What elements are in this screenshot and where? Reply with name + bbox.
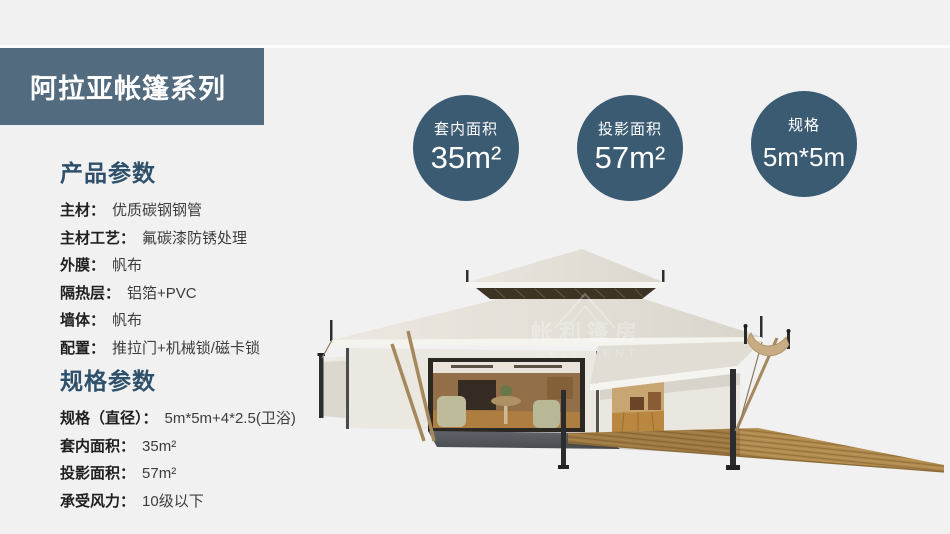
spec-params-heading: 规格参数 <box>60 362 296 396</box>
watermark-en: WELL TENT <box>534 348 640 360</box>
param-row: 墙体：帆布 <box>60 307 260 335</box>
param-row: 配置：推拉门+机械锁/磁卡锁 <box>60 335 260 363</box>
series-banner: 阿拉亚帐篷系列 <box>0 48 264 125</box>
param-value: 帆布 <box>112 257 142 274</box>
param-value: 35m² <box>142 438 176 455</box>
param-label: 主材： <box>60 202 105 219</box>
param-value: 推拉门+机械锁/磁卡锁 <box>112 340 260 357</box>
param-row: 承受风力：10级以下 <box>60 488 296 516</box>
param-value: 氟碳漆防锈处理 <box>142 230 247 247</box>
param-label: 墙体： <box>60 312 105 329</box>
param-label: 规格（直径）： <box>60 410 158 427</box>
badge-value: 57m² <box>577 140 683 176</box>
param-value: 帆布 <box>112 312 142 329</box>
watermark-cn: 帐利篷房 <box>531 320 643 345</box>
badge-value: 5m*5m <box>751 142 857 173</box>
spec-params-section: 规格参数 规格（直径）：5m*5m+4*2.5(卫浴) 套内面积：35m² 投影… <box>60 362 296 515</box>
param-label: 套内面积： <box>60 438 135 455</box>
param-label: 配置： <box>60 340 105 357</box>
badge-label: 规格 <box>751 114 857 135</box>
badge-value: 35m² <box>413 140 519 176</box>
param-label: 承受风力： <box>60 493 135 510</box>
param-value: 10级以下 <box>142 493 204 510</box>
param-label: 隔热层： <box>60 285 120 302</box>
param-row: 外膜：帆布 <box>60 252 260 280</box>
param-row: 投影面积：57m² <box>60 460 296 488</box>
param-label: 主材工艺： <box>60 230 135 247</box>
product-params-section: 产品参数 主材：优质碳钢钢管 主材工艺：氟碳漆防锈处理 外膜：帆布 隔热层：铝箔… <box>60 154 260 362</box>
param-row: 套内面积：35m² <box>60 433 296 461</box>
param-row: 主材工艺：氟碳漆防锈处理 <box>60 225 260 253</box>
badge-inner-area: 套内面积 35m² <box>413 95 519 201</box>
badge-label: 投影面积 <box>577 118 683 139</box>
param-value: 铝箔+PVC <box>127 285 197 302</box>
param-row: 规格（直径）：5m*5m+4*2.5(卫浴) <box>60 405 296 433</box>
tent-illustration: 帐利篷房 WELL TENT <box>300 232 950 534</box>
series-title: 阿拉亚帐篷系列 <box>30 67 226 106</box>
param-label: 外膜： <box>60 257 105 274</box>
product-params-heading: 产品参数 <box>60 154 260 188</box>
badge-spec: 规格 5m*5m <box>751 91 857 197</box>
badge-projection-area: 投影面积 57m² <box>577 95 683 201</box>
badge-label: 套内面积 <box>413 118 519 139</box>
param-row: 隔热层：铝箔+PVC <box>60 280 260 308</box>
param-value: 57m² <box>142 465 176 482</box>
param-label: 投影面积： <box>60 465 135 482</box>
page: 阿拉亚帐篷系列 产品参数 主材：优质碳钢钢管 主材工艺：氟碳漆防锈处理 外膜：帆… <box>0 0 950 534</box>
param-value: 5m*5m+4*2.5(卫浴) <box>165 410 296 427</box>
param-row: 主材：优质碳钢钢管 <box>60 197 260 225</box>
param-value: 优质碳钢钢管 <box>112 202 202 219</box>
